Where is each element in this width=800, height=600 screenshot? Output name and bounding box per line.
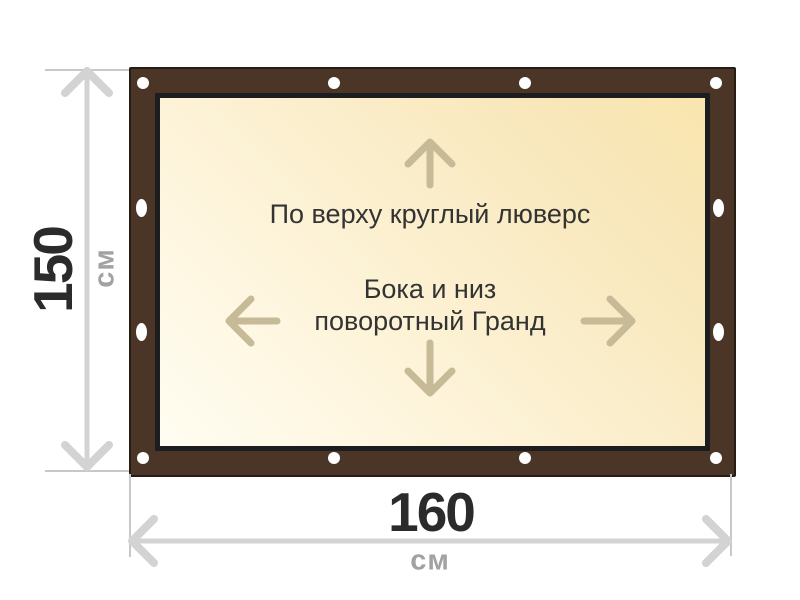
grommet-icon: [328, 77, 340, 89]
banner-frame: [129, 67, 736, 477]
sides-note-line2: поворотный Гранд: [130, 305, 730, 337]
grommet-icon: [137, 452, 149, 464]
grommet-icon: [710, 452, 722, 464]
width-value-label: 160: [388, 480, 474, 544]
sides-bottom-note: Бока и низ поворотный Гранд: [130, 273, 730, 337]
grommet-icon: [137, 77, 149, 89]
width-unit-label: см: [410, 545, 450, 578]
top-edge-note: По верху круглый люверс: [130, 198, 730, 230]
sides-note-line1: Бока и низ: [130, 273, 730, 305]
grommet-icon: [328, 452, 340, 464]
grommet-icon: [519, 77, 531, 89]
banner-surface: [155, 93, 710, 451]
banner-size-diagram: 150 см 160 см По верху круглый люверс Бо…: [0, 0, 800, 600]
grommet-icon: [710, 77, 722, 89]
height-value-label: 150: [21, 227, 85, 313]
grommet-icon: [519, 452, 531, 464]
height-unit-label: см: [89, 248, 122, 288]
